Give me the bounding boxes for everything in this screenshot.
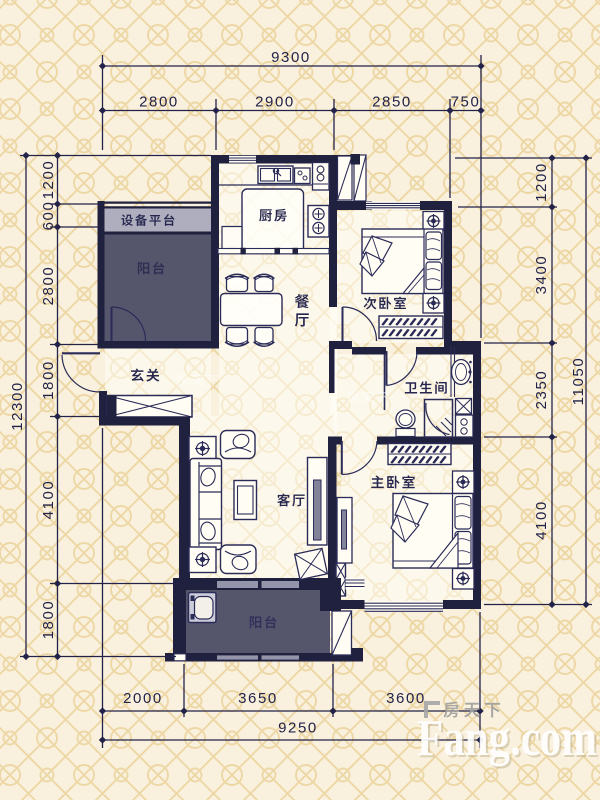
svg-text:2800: 2800 <box>139 94 179 111</box>
svg-text:600: 600 <box>40 201 57 231</box>
svg-text:2000: 2000 <box>123 690 163 707</box>
svg-text:Fang.com: Fang.com <box>417 710 597 767</box>
svg-text:2350: 2350 <box>533 370 550 410</box>
svg-text:2900: 2900 <box>255 94 295 111</box>
svg-text:1800: 1800 <box>40 360 57 400</box>
svg-text:2850: 2850 <box>372 94 412 111</box>
svg-text:3400: 3400 <box>533 255 550 295</box>
svg-text:4100: 4100 <box>533 500 550 540</box>
svg-text:9250: 9250 <box>278 720 318 737</box>
svg-text:4100: 4100 <box>40 480 57 520</box>
svg-text:1800: 1800 <box>40 600 57 640</box>
svg-text:750: 750 <box>451 94 481 111</box>
svg-text:1200: 1200 <box>40 160 57 200</box>
svg-text:3600: 3600 <box>386 690 426 707</box>
svg-text:1200: 1200 <box>533 162 550 202</box>
svg-text:9300: 9300 <box>271 49 311 66</box>
svg-text:11050: 11050 <box>570 357 587 406</box>
svg-text:2800: 2800 <box>40 266 57 306</box>
svg-text:3650: 3650 <box>238 690 278 707</box>
svg-text:12300: 12300 <box>9 381 26 431</box>
